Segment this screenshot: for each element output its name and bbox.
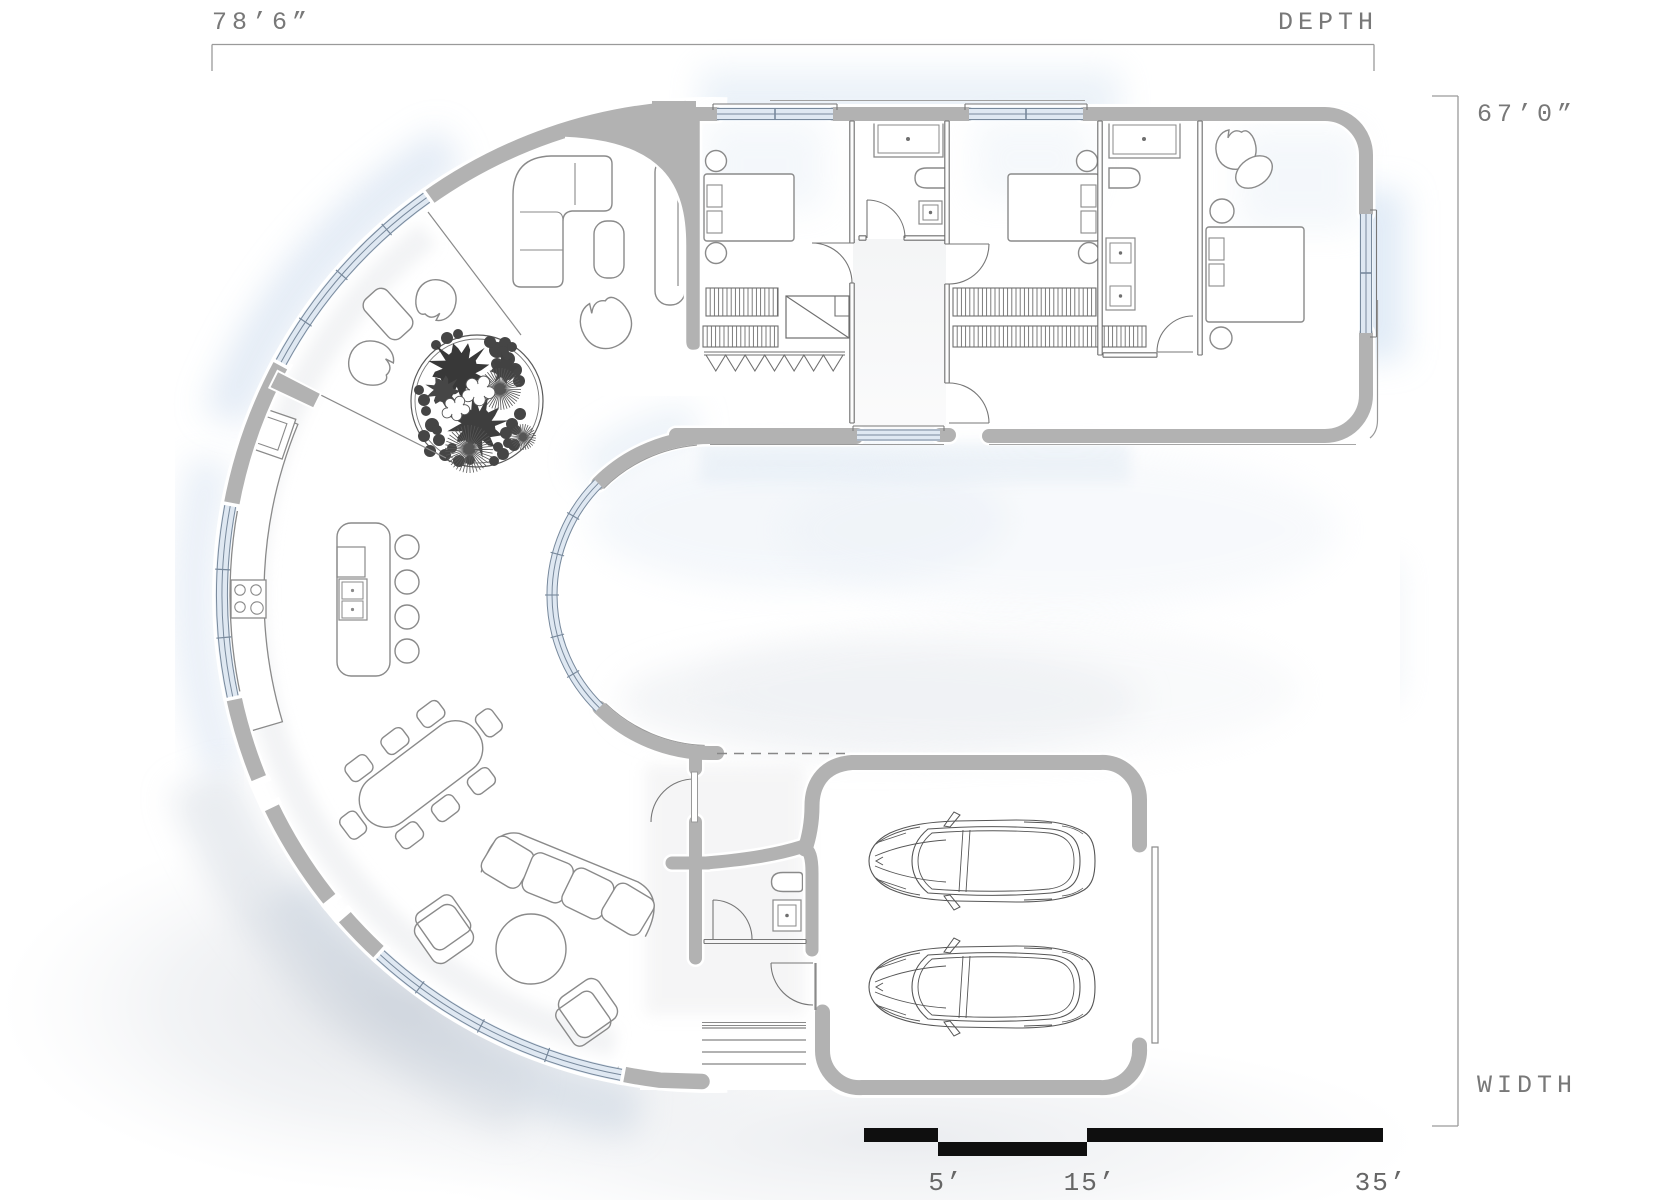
svg-text:WIDTH: WIDTH	[1477, 1071, 1577, 1100]
svg-text:67’0”: 67’0”	[1477, 100, 1577, 129]
svg-text:DEPTH: DEPTH	[1278, 8, 1378, 37]
svg-text:15’: 15’	[1064, 1168, 1117, 1198]
svg-text:5’: 5’	[928, 1168, 963, 1198]
svg-text:78’6”: 78’6”	[212, 8, 312, 37]
svg-text:35’: 35’	[1355, 1168, 1408, 1198]
